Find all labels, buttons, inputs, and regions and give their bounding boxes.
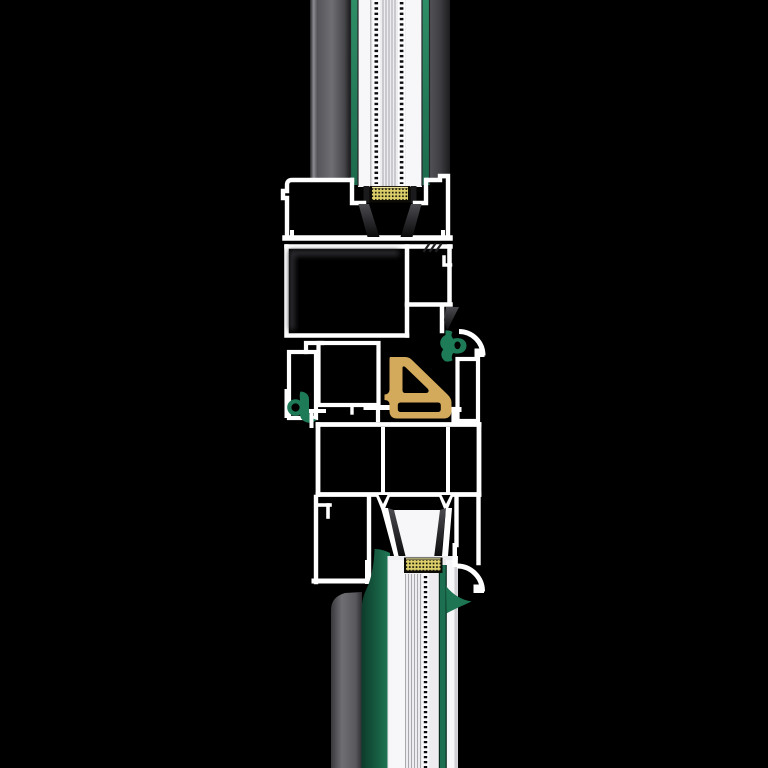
lower-right-gasket-strip bbox=[439, 565, 446, 768]
upper-right-glazing-gasket bbox=[422, 0, 430, 185]
nub-right bbox=[441, 230, 445, 236]
upper-right-shadow-column bbox=[430, 0, 450, 179]
big-chamber-left-bottom bbox=[287, 247, 408, 336]
right-inner-gasket bbox=[440, 330, 466, 361]
gasket-ring bbox=[289, 401, 301, 413]
window-cross-section-stage bbox=[0, 0, 768, 768]
frame-main-chamber bbox=[318, 425, 479, 495]
lower-glass-pane-left bbox=[389, 560, 405, 768]
upper-left-shadow-column bbox=[310, 0, 350, 179]
nub-left bbox=[290, 230, 294, 236]
lower-glass-edge bbox=[455, 560, 458, 768]
upper-glass-pane-right bbox=[406, 0, 422, 187]
center-seal-gold bbox=[385, 357, 452, 419]
upper-left-glazing-gasket bbox=[350, 0, 358, 185]
spacer-dot-grid bbox=[372, 189, 408, 201]
sash-left-wall bbox=[283, 180, 352, 238]
right-step-wedge bbox=[444, 307, 459, 331]
wedge-left bbox=[359, 204, 380, 237]
spacer-shadow-right bbox=[411, 186, 417, 203]
upper-spacer-bar bbox=[364, 186, 417, 203]
lower-left-shadow-column bbox=[331, 592, 362, 768]
bead-tab bbox=[475, 349, 485, 358]
lower-glazing-unit bbox=[331, 508, 484, 768]
wedge-right bbox=[401, 204, 422, 237]
middle-chamber bbox=[319, 343, 379, 405]
gasket-hollow bbox=[454, 342, 460, 350]
upper-glass-pane-left bbox=[359, 0, 372, 187]
chamber-inner-glow bbox=[292, 253, 399, 330]
sash-chamber-section bbox=[287, 247, 451, 336]
strip-edge-l bbox=[439, 565, 440, 768]
bead-tab-2 bbox=[474, 585, 485, 594]
sash-glazing-wedges bbox=[290, 204, 445, 237]
window-cross-section bbox=[0, 0, 768, 768]
gasket-body bbox=[440, 330, 466, 361]
spacer-highlight bbox=[372, 187, 408, 188]
gasket-carrier-bar bbox=[285, 389, 289, 418]
sash-right-wall bbox=[427, 176, 448, 238]
spacer-highlight-2 bbox=[406, 558, 441, 559]
lower-spacer-bar bbox=[404, 558, 443, 574]
spacer-dot-grid-2 bbox=[406, 560, 441, 571]
bead-stem bbox=[453, 543, 458, 567]
upper-glazing-unit bbox=[310, 0, 450, 203]
spacer-shadow-left bbox=[364, 186, 370, 203]
